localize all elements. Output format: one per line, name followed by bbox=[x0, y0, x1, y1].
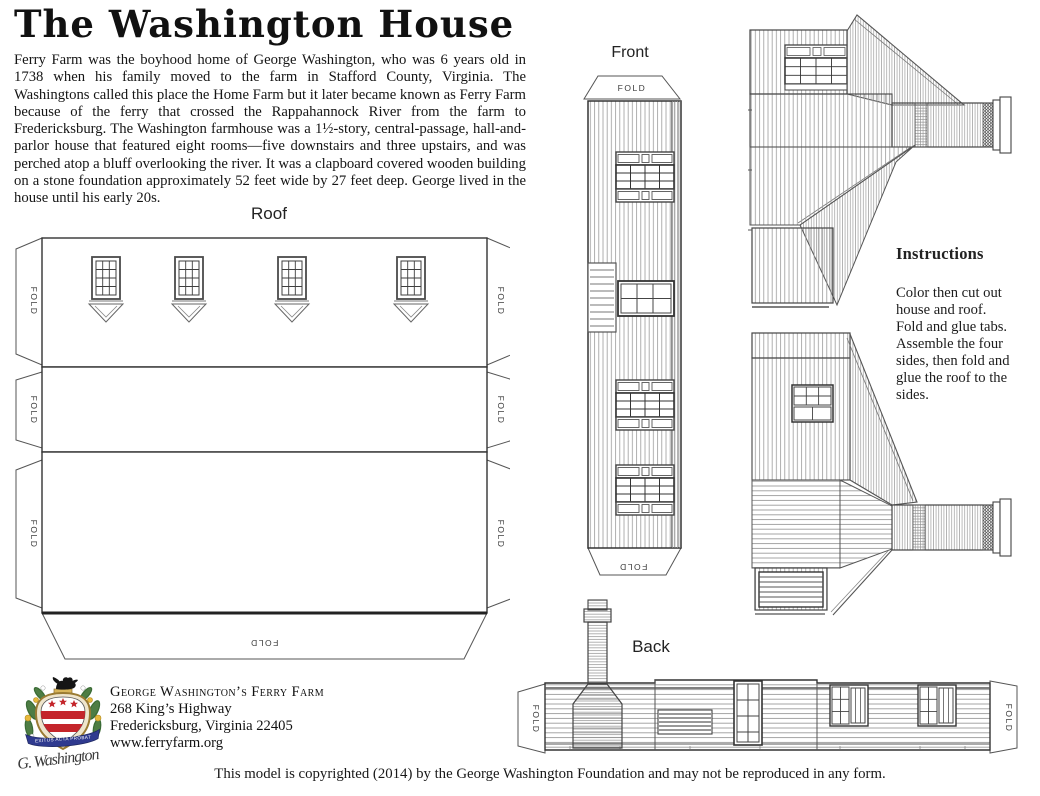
fold-label: FOLD bbox=[496, 520, 506, 549]
fold-label: FOLD bbox=[619, 562, 648, 572]
address-street: 268 King’s Highway bbox=[110, 701, 324, 718]
fold-label: FOLD bbox=[496, 287, 506, 316]
fold-label: FOLD bbox=[29, 287, 39, 316]
fold-label: FOLD bbox=[250, 638, 279, 648]
fold-label: FOLD bbox=[618, 83, 647, 93]
page-title: The Washington House bbox=[14, 2, 514, 46]
website-url: www.ferryfarm.org bbox=[110, 735, 324, 752]
address-city: Fredericksburg, Virginia 22405 bbox=[110, 718, 324, 735]
craft-sheet-page: The Washington House Ferry Farm was the … bbox=[0, 0, 1040, 796]
back-template-drawing: FOLD FOLD bbox=[510, 596, 1022, 764]
address-block: George Washington’s Ferry Farm 268 King’… bbox=[110, 684, 324, 752]
fold-label: FOLD bbox=[531, 705, 541, 734]
roof-piece-label: Roof bbox=[226, 204, 312, 224]
instructions-line: house and roof. bbox=[896, 302, 1028, 319]
gable-end-2-drawing bbox=[745, 330, 1017, 618]
front-piece-label: Front bbox=[598, 44, 662, 62]
instructions-heading: Instructions bbox=[896, 244, 1028, 264]
organization-name: George Washington’s Ferry Farm bbox=[110, 684, 324, 701]
instructions-line: Color then cut out bbox=[896, 285, 1028, 302]
roof-template-drawing: FOLD FOLD FOLD FOLD FOLD FOLD FOLD bbox=[8, 232, 510, 664]
fold-label: FOLD bbox=[496, 396, 506, 425]
fold-label: FOLD bbox=[29, 520, 39, 549]
front-template-drawing: FOLD FOLD bbox=[580, 74, 686, 584]
copyright-line: This model is copyrighted (2014) by the … bbox=[60, 766, 1040, 783]
fold-label: FOLD bbox=[29, 396, 39, 425]
intro-paragraph: Ferry Farm was the boyhood home of Georg… bbox=[14, 52, 526, 208]
fold-label: FOLD bbox=[1004, 704, 1014, 733]
washington-crest-logo: EXITUS ACTA PROBAT G. Washington bbox=[16, 676, 112, 780]
